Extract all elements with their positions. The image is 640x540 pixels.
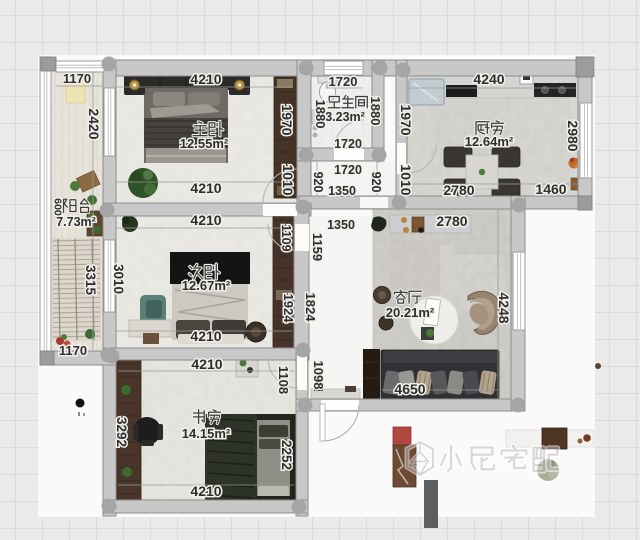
svg-text:4210: 4210: [190, 71, 221, 87]
svg-text:1350: 1350: [328, 184, 356, 198]
svg-text:600: 600: [52, 198, 64, 216]
svg-text:1720: 1720: [329, 74, 358, 89]
svg-text:1098: 1098: [311, 361, 326, 390]
svg-text:7.73m²: 7.73m²: [56, 215, 96, 229]
svg-text:1720: 1720: [334, 137, 362, 151]
svg-text:1460: 1460: [535, 181, 566, 197]
svg-text:3315: 3315: [83, 265, 98, 296]
svg-text:1109: 1109: [279, 224, 293, 251]
svg-text:12.64m²: 12.64m²: [465, 134, 514, 149]
svg-text:1824: 1824: [303, 293, 318, 323]
svg-text:1880: 1880: [313, 100, 328, 129]
svg-text:4210: 4210: [190, 180, 221, 196]
svg-text:1108: 1108: [276, 366, 291, 394]
svg-text:3.23m²: 3.23m²: [325, 110, 365, 124]
svg-text:12.55m²: 12.55m²: [180, 136, 229, 151]
svg-text:2780: 2780: [436, 213, 467, 229]
svg-text:4248: 4248: [496, 292, 512, 323]
svg-text:4240: 4240: [473, 71, 504, 87]
svg-text:1010: 1010: [398, 164, 414, 195]
svg-text:1010: 1010: [280, 164, 296, 195]
svg-text:4210: 4210: [191, 356, 222, 372]
svg-text:2980: 2980: [565, 120, 581, 151]
svg-text:1970: 1970: [279, 104, 295, 135]
svg-text:1720: 1720: [334, 163, 362, 177]
svg-text:14.15m²: 14.15m²: [182, 426, 231, 441]
svg-text:2252: 2252: [279, 440, 294, 470]
svg-text:4650: 4650: [394, 381, 425, 397]
svg-text:1350: 1350: [327, 218, 355, 232]
svg-text:920: 920: [369, 172, 383, 193]
svg-text:1924: 1924: [281, 294, 296, 324]
svg-text:1880: 1880: [368, 97, 383, 126]
svg-text:4210: 4210: [190, 212, 221, 228]
svg-text:920: 920: [311, 172, 325, 193]
svg-text:1970: 1970: [398, 104, 414, 135]
svg-text:1170: 1170: [63, 71, 91, 86]
svg-text:2780: 2780: [443, 182, 474, 198]
svg-text:3010: 3010: [111, 264, 126, 294]
svg-text:1159: 1159: [310, 233, 325, 261]
svg-text:4210: 4210: [190, 483, 221, 499]
svg-text:2420: 2420: [86, 108, 102, 139]
svg-text:20.21m²: 20.21m²: [386, 305, 435, 320]
svg-text:4210: 4210: [190, 328, 221, 344]
svg-text:3292: 3292: [114, 417, 129, 447]
svg-text:1170: 1170: [59, 343, 87, 358]
